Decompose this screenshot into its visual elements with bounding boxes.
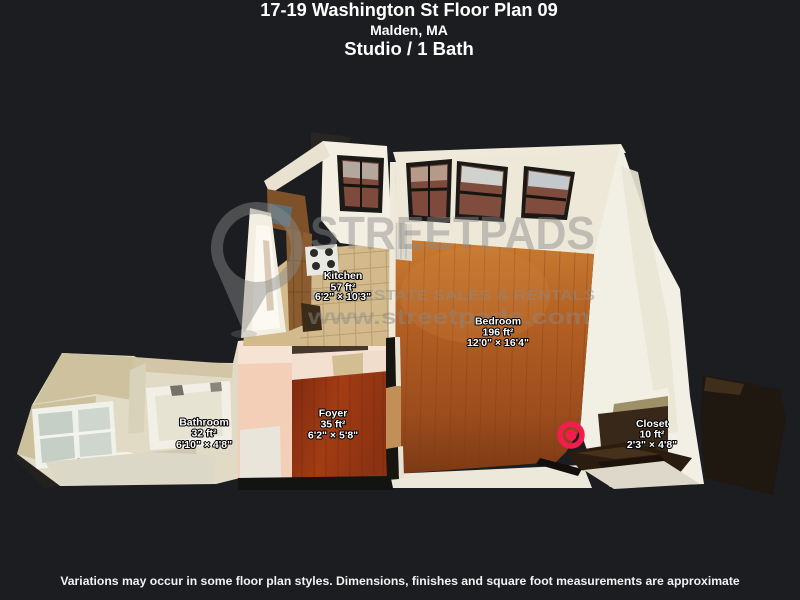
- svg-text:6'2" × 10'3": 6'2" × 10'3": [315, 291, 371, 303]
- svg-text:www.streetpads.com: www.streetpads.com: [307, 306, 590, 329]
- svg-text:6'10" × 4'8": 6'10" × 4'8": [176, 439, 232, 451]
- svg-text:12'0" × 16'4": 12'0" × 16'4": [467, 337, 529, 349]
- svg-text:2'3" × 4'8": 2'3" × 4'8": [627, 439, 677, 451]
- svg-text:32 ft²: 32 ft²: [191, 428, 217, 440]
- svg-text:6'2" × 5'8": 6'2" × 5'8": [308, 430, 358, 442]
- svg-text:Kitchen: Kitchen: [324, 270, 363, 282]
- svg-text:STREETPADS: STREETPADS: [310, 207, 595, 259]
